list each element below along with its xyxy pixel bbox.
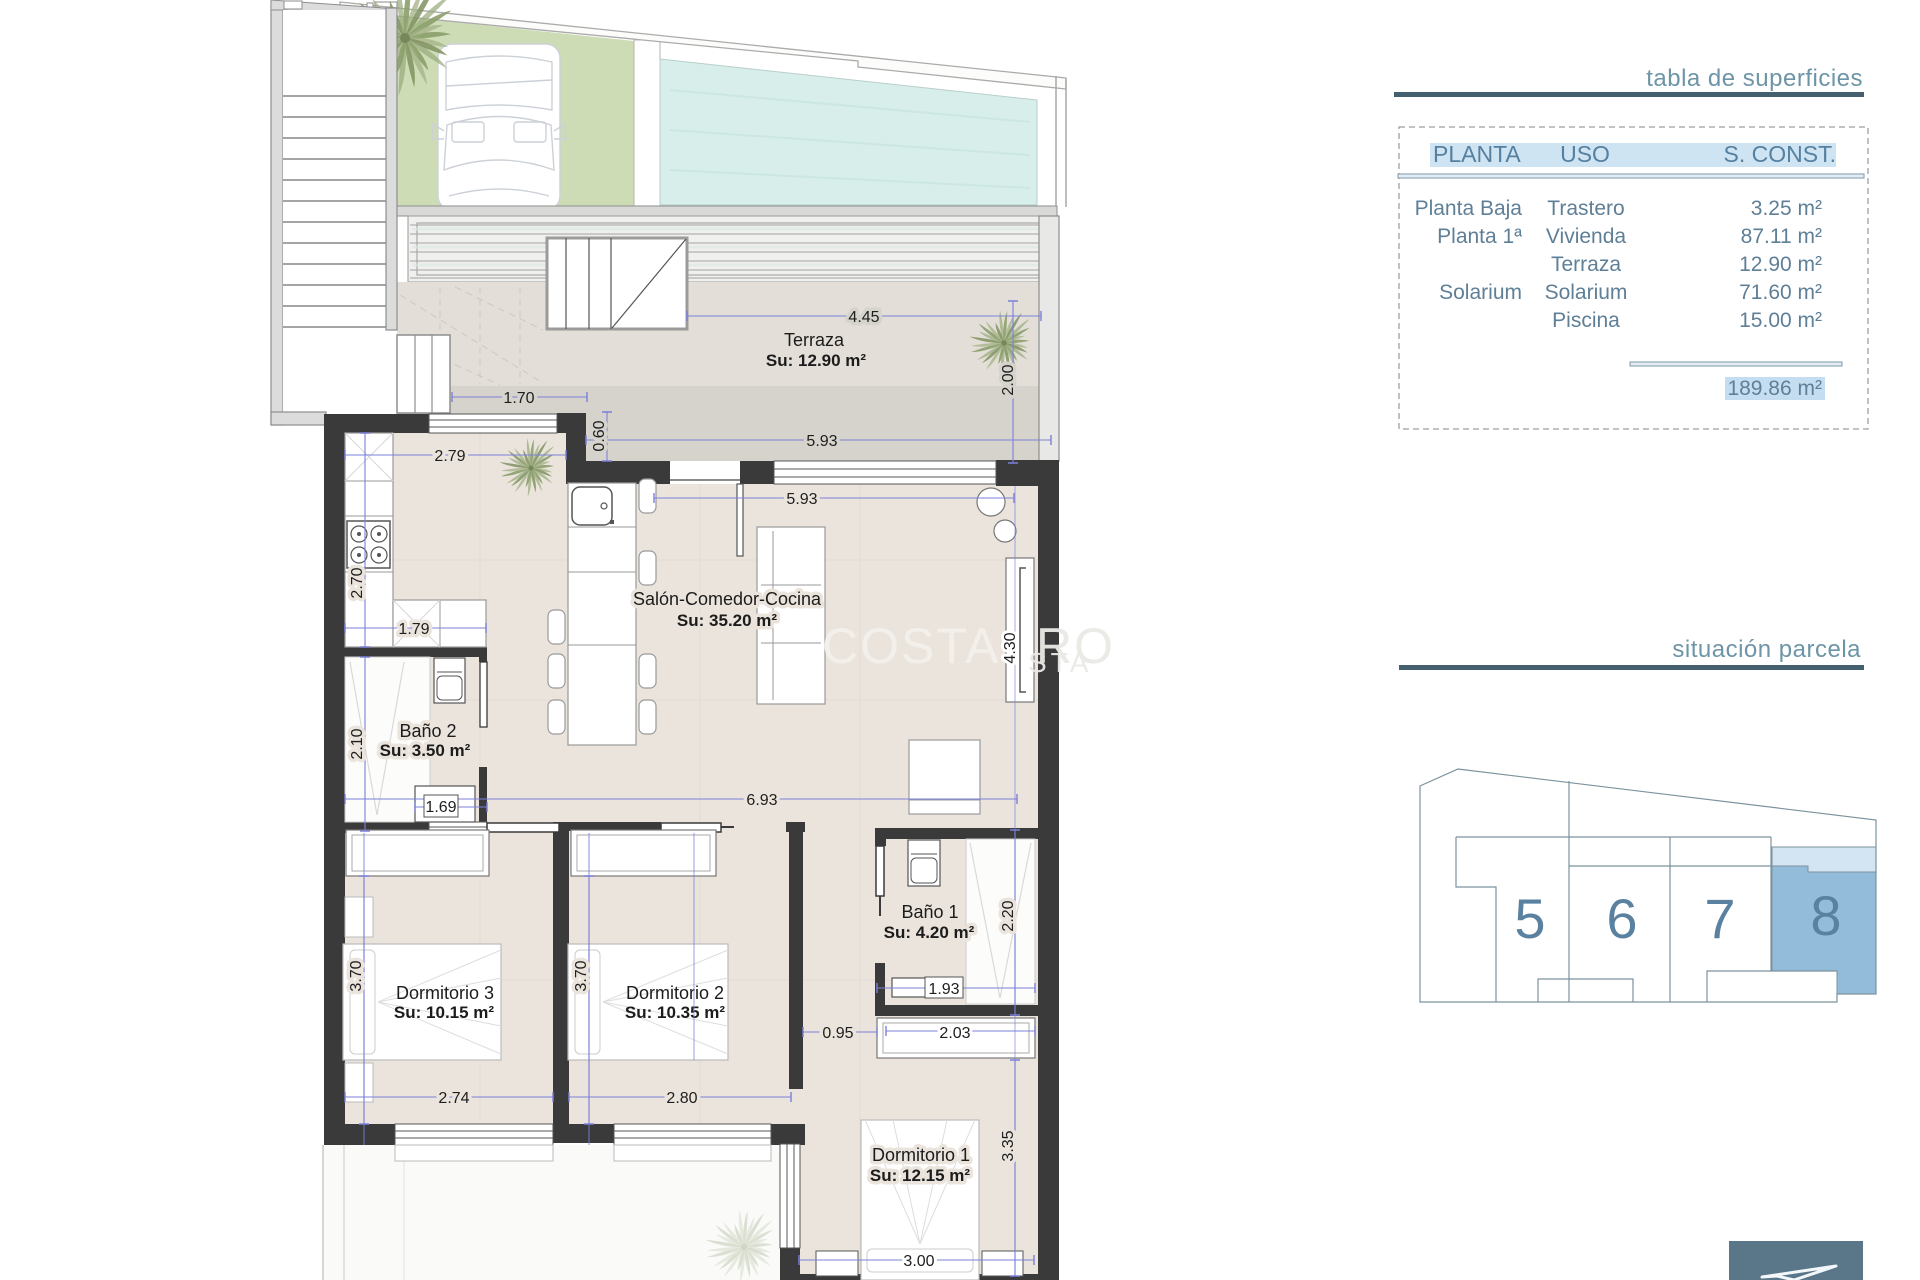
svg-text:5.93: 5.93 xyxy=(786,491,817,508)
svg-text:Solarium: Solarium xyxy=(1545,281,1628,304)
svg-text:5.93: 5.93 xyxy=(806,433,837,450)
svg-text:0.60: 0.60 xyxy=(591,420,608,451)
svg-text:Vivienda: Vivienda xyxy=(1546,225,1626,248)
svg-text:8: 8 xyxy=(1810,884,1841,947)
svg-text:Solarium: Solarium xyxy=(1439,281,1522,304)
svg-text:Su: 10.35 m²: Su: 10.35 m² xyxy=(625,1003,725,1022)
svg-text:3.00: 3.00 xyxy=(903,1253,934,1270)
svg-text:2.10: 2.10 xyxy=(349,728,366,759)
svg-text:situación parcela: situación parcela xyxy=(1672,636,1861,663)
svg-text:Su: 10.15 m²: Su: 10.15 m² xyxy=(394,1003,494,1022)
svg-text:3.35: 3.35 xyxy=(1000,1130,1017,1161)
svg-text:1.79: 1.79 xyxy=(398,621,429,638)
svg-text:3.70: 3.70 xyxy=(348,960,365,991)
svg-text:12.90 m²: 12.90 m² xyxy=(1739,253,1822,276)
svg-text:7: 7 xyxy=(1704,887,1735,950)
svg-text:Planta Baja: Planta Baja xyxy=(1415,197,1523,220)
svg-text:Planta 1ª: Planta 1ª xyxy=(1437,225,1522,248)
svg-text:Su: 12.90 m²: Su: 12.90 m² xyxy=(766,351,866,370)
svg-text:Salón-Comedor-Cocina: Salón-Comedor-Cocina xyxy=(633,589,822,609)
svg-text:Dormitorio 2: Dormitorio 2 xyxy=(626,983,724,1003)
svg-text:87.11 m²: 87.11 m² xyxy=(1741,225,1822,248)
svg-text:1.69: 1.69 xyxy=(425,799,456,816)
svg-text:2.20: 2.20 xyxy=(1000,900,1017,931)
svg-text:2.70: 2.70 xyxy=(349,567,366,598)
svg-text:4.30: 4.30 xyxy=(1002,632,1019,663)
svg-text:Dormitorio 1: Dormitorio 1 xyxy=(872,1145,970,1165)
svg-text:2.80: 2.80 xyxy=(666,1090,697,1107)
svg-text:Su: 3.50 m²: Su: 3.50 m² xyxy=(380,741,471,760)
svg-text:0.95: 0.95 xyxy=(822,1025,853,1042)
svg-text:Piscina: Piscina xyxy=(1552,309,1620,332)
svg-text:Su: 35.20 m²: Su: 35.20 m² xyxy=(677,611,777,630)
svg-text:Terraza: Terraza xyxy=(784,330,845,350)
svg-text:3.25 m²: 3.25 m² xyxy=(1751,197,1822,220)
svg-text:15.00 m²: 15.00 m² xyxy=(1739,309,1822,332)
svg-text:5: 5 xyxy=(1514,887,1545,950)
svg-text:Su: 4.20 m²: Su: 4.20 m² xyxy=(884,923,975,942)
svg-text:Su: 12.15 m²: Su: 12.15 m² xyxy=(870,1166,970,1185)
svg-text:71.60 m²: 71.60 m² xyxy=(1739,281,1822,304)
svg-text:3.70: 3.70 xyxy=(573,960,590,991)
svg-text:2.79: 2.79 xyxy=(434,448,465,465)
svg-text:1.70: 1.70 xyxy=(503,390,534,407)
svg-text:6: 6 xyxy=(1606,887,1637,950)
svg-text:2.00: 2.00 xyxy=(1000,364,1017,395)
svg-text:tabla de superficies: tabla de superficies xyxy=(1646,65,1863,92)
svg-text:Trastero: Trastero xyxy=(1547,197,1624,220)
svg-text:189.86 m²: 189.86 m² xyxy=(1727,377,1822,400)
svg-text:Baño 2: Baño 2 xyxy=(399,721,456,741)
svg-text:2.74: 2.74 xyxy=(438,1090,469,1107)
svg-text:Terraza: Terraza xyxy=(1551,253,1621,276)
svg-text:4.45: 4.45 xyxy=(848,309,879,326)
svg-text:USO: USO xyxy=(1560,141,1610,167)
svg-text:2.03: 2.03 xyxy=(939,1025,970,1042)
svg-text:PLANTA: PLANTA xyxy=(1433,141,1521,167)
svg-text:STA: STA xyxy=(1028,647,1092,678)
svg-text:Dormitorio 3: Dormitorio 3 xyxy=(396,983,494,1003)
svg-text:1.93: 1.93 xyxy=(928,981,959,998)
svg-text:6.93: 6.93 xyxy=(746,792,777,809)
svg-text:COSTA: COSTA xyxy=(822,618,1001,674)
svg-text:S. CONST.: S. CONST. xyxy=(1724,141,1836,167)
svg-text:Baño 1: Baño 1 xyxy=(901,902,958,922)
